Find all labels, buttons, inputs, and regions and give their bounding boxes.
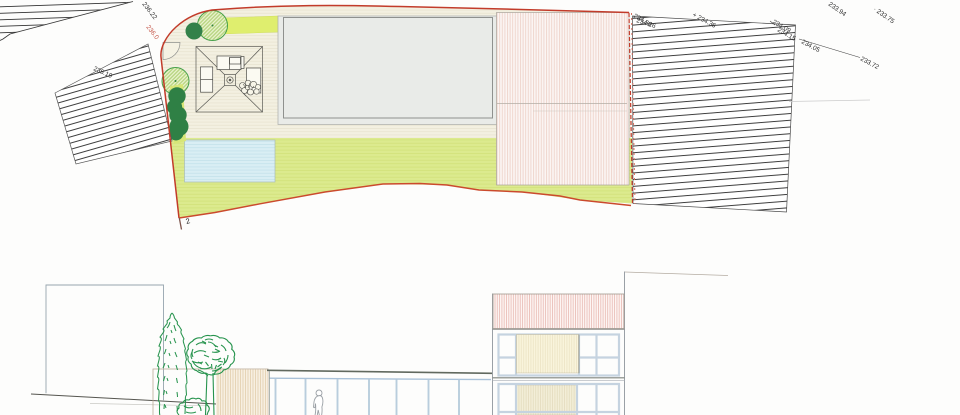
svg-text:2: 2 [185,216,191,226]
svg-text:233.72: 233.72 [859,56,880,72]
svg-text:236.22: 236.22 [140,1,158,21]
svg-text:· 233.75: · 233.75 [872,6,896,26]
svg-text:234.05: 234.05 [800,39,821,55]
svg-text:236.0: 236.0 [144,24,160,41]
svg-text:233.94: 233.94 [827,1,848,18]
